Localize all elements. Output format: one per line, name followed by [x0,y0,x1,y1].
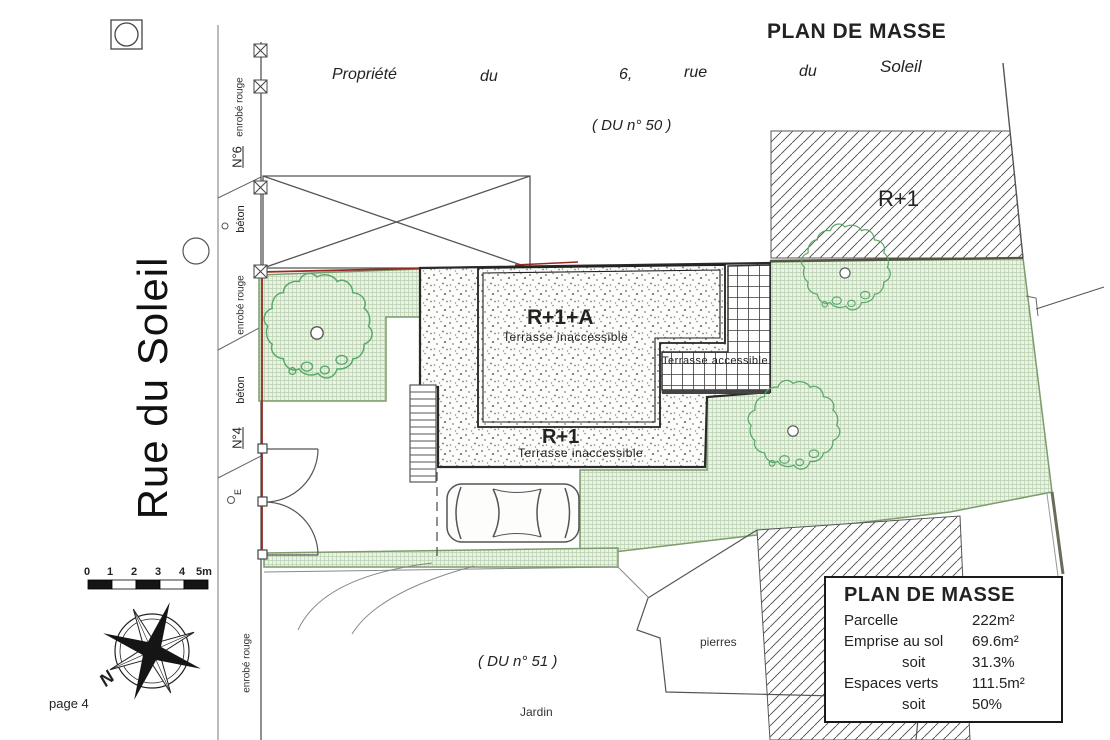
property-word-4: rue [684,64,707,82]
r1a-label: R+1+A [527,306,594,330]
jardin-label: Jardin [520,705,553,719]
property-word-6: Soleil [880,57,922,77]
legend-value: 222m² [972,610,1061,631]
scale-tick-3: 3 [155,566,161,578]
car [447,484,579,542]
legend-label: Parcelle [844,610,972,631]
legend-label: Espaces verts [844,673,972,694]
scale-tick-0: 0 [84,566,90,578]
legend-label: soit [844,694,972,715]
legend-row-parcelle: Parcelle 222m² [844,610,1061,631]
street-name: Rue du Soleil [129,257,177,520]
legend-row-espaces-verts: Espaces verts 111.5m² [844,673,1061,694]
property-word-1: Propriété [332,66,397,84]
r1a-sublabel: Terrasse inaccessible [503,330,628,344]
du51-label: ( DU n° 51 ) [478,653,557,670]
neighbor-r1-label: R+1 [878,186,919,212]
r1-sublabel: Terrasse inaccessible [518,446,643,460]
legend-value: 111.5m² [972,673,1061,694]
property-word-5: du [799,63,817,81]
property-word-2: du [480,68,498,86]
compass-rose [85,584,218,717]
legend-value: 69.6m² [972,631,1061,652]
entrance-gates [258,444,318,559]
stairs [410,385,436,482]
enrobe-rouge-label-1: enrobé rouge [235,77,246,137]
page-number-label: page 4 [49,696,89,711]
legend-label: soit [844,652,972,673]
beton-label-1: béton [235,205,247,233]
site-plan-page: PLAN DE MASSE Propriété du 6, rue du Sol… [0,0,1110,740]
legend-row-emprise: Emprise au sol 69.6m² [844,631,1061,652]
house-number-4: N°4 [230,427,245,449]
e-label: E [233,489,243,495]
du50-label: ( DU n° 50 ) [592,117,671,134]
house-number-6: N°6 [230,146,245,168]
scale-bar [88,580,208,589]
pierres-label: pierres [700,635,737,649]
scale-tick-1: 1 [107,566,113,578]
scale-tick-2: 2 [131,566,137,578]
scale-tick-4: 4 [179,566,185,578]
page-title: PLAN DE MASSE [767,20,946,44]
beton-label-2: béton [235,376,247,404]
misc-ground-lines [264,563,648,634]
legend-title: PLAN DE MASSE [844,584,1061,607]
legend-value: 31.3% [972,652,1061,673]
legend-box: PLAN DE MASSE Parcelle 222m² Emprise au … [824,576,1063,723]
scale-tick-5: 5m [196,566,212,578]
legend-value: 50% [972,694,1061,715]
enrobe-rouge-label-2: enrobé rouge [236,275,247,335]
crossed-structure [263,176,530,268]
legend-row-soit-2: soit 50% [844,694,1061,715]
enrobe-rouge-label-3: enrobé rouge [242,633,253,693]
legend-row-soit-1: soit 31.3% [844,652,1061,673]
legend-label: Emprise au sol [844,631,972,652]
terrace-label: Terrasse accessible [662,355,768,367]
property-word-3: 6, [619,66,632,84]
